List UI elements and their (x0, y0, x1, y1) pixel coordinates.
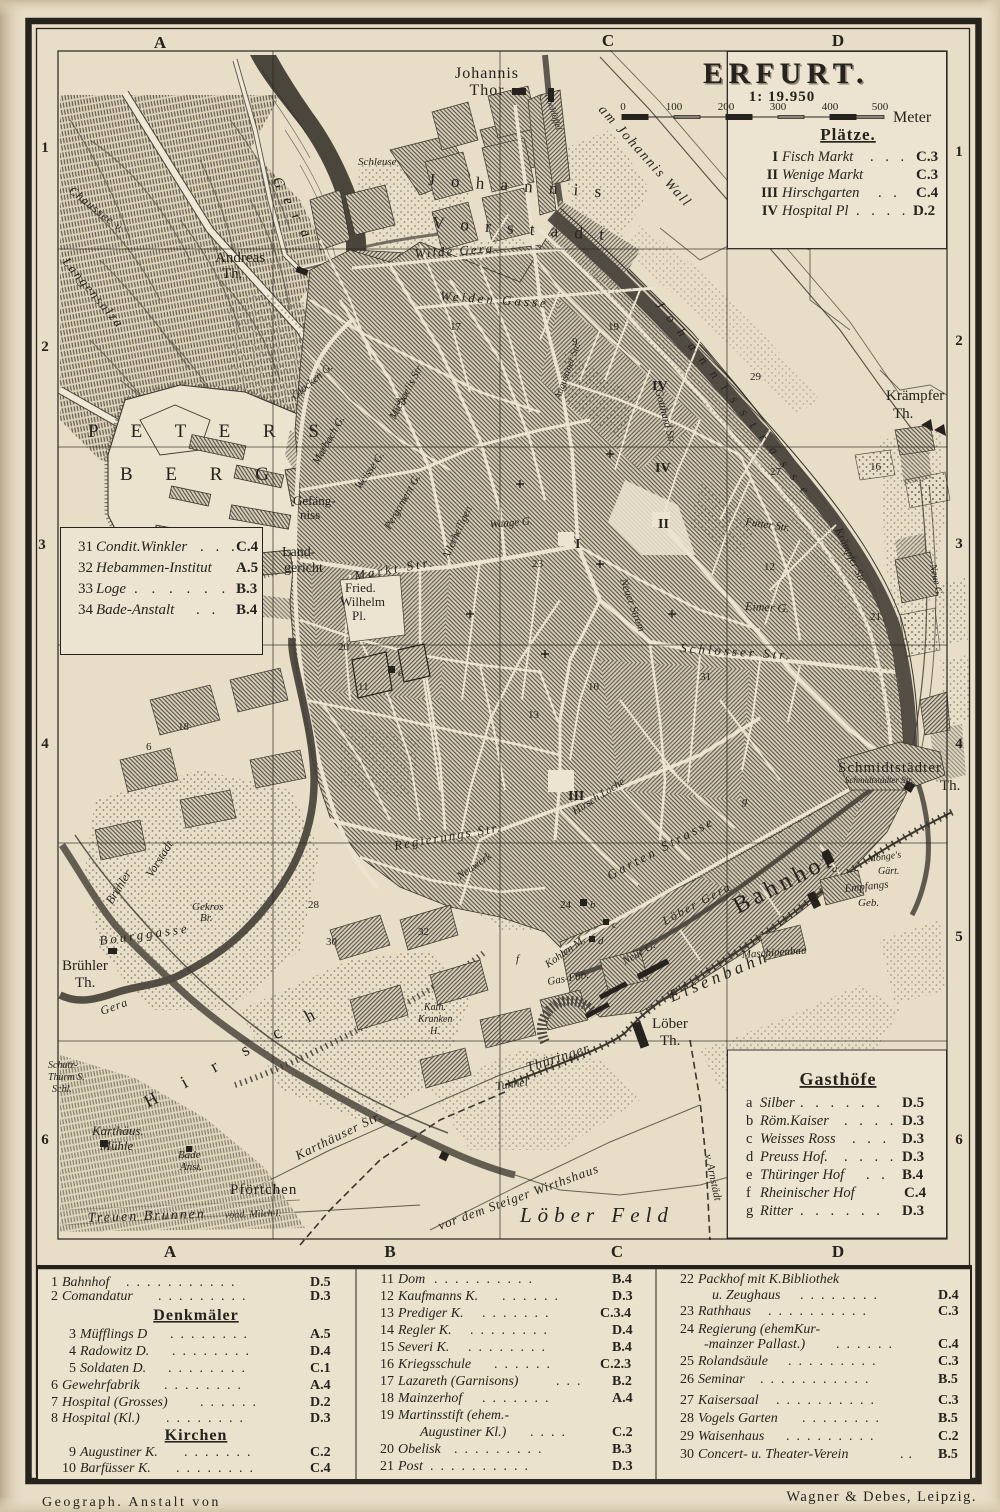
svg-text:Kirchen: Kirchen (165, 1427, 228, 1444)
svg-text:Andreas: Andreas (215, 250, 265, 266)
svg-text:33: 33 (395, 396, 407, 408)
svg-text:I: I (575, 537, 580, 552)
svg-text:D.3: D.3 (612, 1459, 633, 1474)
svg-text:Schmidtstädter Str.: Schmidtstädter Str. (845, 775, 913, 785)
svg-text:Hospital (Kl.): Hospital (Kl.) (61, 1411, 140, 1426)
svg-text:Thüringer Hof: Thüringer Hof (760, 1167, 846, 1183)
svg-text:29: 29 (680, 1429, 694, 1444)
svg-text:20: 20 (380, 1442, 394, 1457)
svg-text:Fried.: Fried. (345, 580, 376, 595)
svg-text:23: 23 (680, 1304, 694, 1319)
svg-text:5: 5 (69, 1361, 76, 1376)
svg-text:-mainzer Pallast.): -mainzer Pallast.) (704, 1337, 805, 1352)
svg-text:Brühler: Brühler (62, 958, 108, 974)
svg-text:Weisses Ross: Weisses Ross (760, 1131, 836, 1147)
svg-text:C.3.4: C.3.4 (600, 1306, 631, 1321)
svg-text:Rolandsäule: Rolandsäule (697, 1354, 768, 1369)
svg-text:Löber: Löber (652, 1016, 688, 1032)
svg-text:8: 8 (51, 1411, 58, 1426)
svg-text:Land-: Land- (282, 545, 316, 560)
svg-text:Mainzerhof: Mainzerhof (397, 1391, 464, 1406)
svg-text:H.: H. (429, 1026, 440, 1037)
svg-text:f: f (746, 1185, 751, 1201)
svg-text:16: 16 (870, 461, 882, 473)
svg-text:Th.: Th. (893, 406, 913, 422)
svg-text:......: ...... (494, 1357, 557, 1372)
svg-text:IV: IV (652, 379, 668, 394)
svg-text:B.3: B.3 (236, 581, 257, 597)
svg-text:....: .... (530, 1425, 572, 1440)
svg-text:Geograph. Anstalt von: Geograph. Anstalt von (42, 1495, 221, 1510)
svg-text:Gärt.: Gärt. (878, 866, 899, 877)
svg-text:.......: ....... (482, 1306, 556, 1321)
svg-text:16: 16 (380, 1357, 394, 1372)
svg-text:5: 5 (955, 929, 963, 945)
svg-text:Augustiner K.: Augustiner K. (79, 1445, 158, 1460)
svg-text:22: 22 (680, 1272, 694, 1287)
svg-text:........: ........ (176, 1461, 260, 1476)
svg-text:...........: ........... (760, 1372, 876, 1387)
svg-text:Schl.: Schl. (52, 1084, 72, 1095)
svg-text:Schutz-: Schutz- (48, 1060, 77, 1071)
svg-text:2: 2 (41, 339, 49, 355)
svg-text:D.3: D.3 (902, 1203, 924, 1219)
svg-text:32: 32 (78, 560, 93, 576)
svg-text:Bade: Bade (178, 1149, 201, 1161)
svg-text:Regierung (ehemKur-: Regierung (ehemKur- (697, 1322, 821, 1337)
svg-text:9: 9 (572, 336, 578, 348)
svg-text:Waisenhaus: Waisenhaus (698, 1429, 765, 1444)
svg-text:0: 0 (620, 101, 626, 113)
svg-text:14: 14 (380, 1323, 394, 1338)
svg-text:Meter: Meter (893, 109, 932, 126)
svg-text:34: 34 (78, 602, 94, 618)
svg-text:18: 18 (178, 721, 190, 733)
svg-text:Hospital Pl: Hospital Pl (781, 203, 848, 219)
svg-text:......: ...... (200, 1395, 263, 1410)
svg-text:Th.: Th. (75, 975, 95, 991)
svg-text:Obelisk: Obelisk (398, 1442, 442, 1457)
svg-text:27: 27 (770, 466, 782, 478)
svg-text:10: 10 (62, 1461, 76, 1476)
svg-text:C.4: C.4 (904, 1185, 927, 1201)
svg-text:100: 100 (666, 101, 683, 113)
svg-text:9: 9 (69, 1445, 76, 1460)
svg-text:6: 6 (51, 1378, 58, 1393)
svg-text:6: 6 (41, 1132, 49, 1148)
svg-text:b: b (746, 1113, 753, 1129)
svg-text:C.2: C.2 (612, 1425, 633, 1440)
svg-text:500: 500 (872, 101, 889, 113)
svg-text:C: C (611, 1242, 623, 1261)
svg-text:C.3: C.3 (938, 1354, 959, 1369)
svg-text:........: ........ (170, 1327, 254, 1342)
svg-text:A: A (154, 33, 167, 52)
svg-text:........: ........ (164, 1378, 248, 1393)
svg-text:e: e (398, 667, 403, 679)
svg-text:B.2: B.2 (612, 1374, 632, 1389)
svg-text:. . . .: . . . . (844, 1149, 897, 1165)
svg-text:.......: ....... (482, 1391, 556, 1406)
svg-text:........: ........ (468, 1340, 552, 1355)
svg-text:C.3: C.3 (938, 1393, 959, 1408)
svg-text:. . . .: . . . . (856, 203, 909, 219)
svg-text:c: c (746, 1131, 752, 1147)
svg-text:...........: ........... (126, 1275, 242, 1290)
svg-text:..........: .......... (768, 1304, 873, 1319)
svg-text:19: 19 (608, 321, 620, 333)
svg-text:D.3: D.3 (310, 1289, 331, 1304)
svg-text:Schleuse: Schleuse (358, 156, 397, 168)
svg-text:P E T E R S: P E T E R S (88, 421, 333, 442)
svg-text:Condit.Winkler: Condit.Winkler (96, 539, 187, 555)
svg-text:Ritter: Ritter (759, 1203, 793, 1219)
svg-text:28: 28 (308, 899, 320, 911)
svg-text:4: 4 (955, 736, 963, 752)
svg-text:B.3: B.3 (612, 1442, 632, 1457)
svg-text:voad. Milch I.: voad. Milch I. (225, 1208, 281, 1221)
svg-text:. . . . . .: . . . . . . (800, 1203, 884, 1219)
svg-text:A.5: A.5 (236, 560, 258, 576)
svg-text:III: III (568, 789, 584, 804)
svg-text:4: 4 (69, 1344, 76, 1359)
svg-text:. . . . . .: . . . . . . (800, 1095, 884, 1111)
svg-text:. . . .: . . . . (844, 1113, 897, 1129)
svg-text:Post: Post (397, 1459, 424, 1474)
svg-text:Barfüsser K.: Barfüsser K. (80, 1461, 151, 1476)
svg-text:21: 21 (380, 1459, 394, 1474)
svg-text:B.4: B.4 (236, 602, 258, 618)
svg-text:D.4: D.4 (938, 1288, 959, 1303)
svg-text:Preuss Hof.: Preuss Hof. (759, 1149, 828, 1165)
svg-text:Augustiner Kl.): Augustiner Kl.) (419, 1425, 507, 1440)
svg-text:D.3: D.3 (902, 1131, 924, 1147)
svg-text:Radowitz D.: Radowitz D. (79, 1344, 149, 1359)
svg-text:D.5: D.5 (310, 1275, 331, 1290)
svg-text:C.2.3: C.2.3 (600, 1357, 631, 1372)
svg-text:B.5: B.5 (938, 1447, 958, 1462)
svg-text:D.2: D.2 (913, 203, 935, 219)
svg-text:........: ........ (802, 1411, 886, 1426)
svg-text:...: ... (556, 1374, 588, 1389)
svg-text:III: III (761, 185, 778, 201)
svg-text:Regler K.: Regler K. (397, 1323, 452, 1338)
svg-text:........: ........ (168, 1361, 252, 1376)
svg-text:B.5: B.5 (938, 1411, 958, 1426)
svg-text:Dom: Dom (397, 1272, 425, 1287)
svg-text:C.4: C.4 (916, 185, 939, 201)
svg-text:C.1: C.1 (310, 1361, 331, 1376)
svg-text:Wilhelm: Wilhelm (340, 594, 385, 609)
svg-text:..........: .......... (430, 1459, 535, 1474)
svg-text:..: .. (900, 1447, 917, 1462)
svg-text:g: g (746, 1203, 753, 1219)
svg-text:Röm.Kaiser: Röm.Kaiser (759, 1113, 829, 1129)
svg-text:B.5: B.5 (938, 1372, 958, 1387)
svg-text:6: 6 (146, 741, 152, 753)
svg-text:A.4: A.4 (612, 1391, 633, 1406)
svg-text:Kaufmanns K.: Kaufmanns K. (397, 1289, 478, 1304)
svg-text:B.4: B.4 (612, 1340, 632, 1355)
svg-text:.........: ......... (158, 1289, 253, 1304)
svg-text:Prediger K.: Prediger K. (397, 1306, 464, 1321)
svg-text:C.3: C.3 (916, 167, 938, 183)
svg-text:D.5: D.5 (902, 1095, 924, 1111)
svg-text:II: II (767, 167, 779, 183)
svg-text:Silber: Silber (760, 1095, 795, 1111)
svg-text:........: ........ (166, 1411, 250, 1426)
svg-text:D.4: D.4 (310, 1344, 331, 1359)
svg-text:B.4: B.4 (612, 1272, 632, 1287)
svg-text:d: d (746, 1149, 754, 1165)
svg-text:D: D (832, 31, 844, 50)
svg-text:d: d (598, 935, 604, 947)
svg-text:D.2: D.2 (310, 1395, 331, 1410)
svg-text:Kranken: Kranken (417, 1014, 452, 1025)
svg-text:25: 25 (680, 1354, 694, 1369)
svg-text:.........: ......... (454, 1442, 549, 1457)
svg-text:Kath.: Kath. (423, 1002, 446, 1013)
svg-text:Wagner & Debes, Leipzig.: Wagner & Debes, Leipzig. (786, 1489, 977, 1505)
svg-text:Pförtchen: Pförtchen (230, 1182, 297, 1198)
svg-text:31: 31 (700, 671, 711, 683)
svg-text:B.4: B.4 (902, 1167, 924, 1183)
svg-text:b: b (590, 899, 596, 911)
svg-text:Concert- u. Theater-Verein: Concert- u. Theater-Verein (698, 1447, 848, 1462)
svg-text:3: 3 (38, 537, 46, 553)
svg-text:I: I (772, 149, 778, 165)
svg-text:Johannis: Johannis (455, 65, 519, 82)
svg-text:D.3: D.3 (902, 1149, 924, 1165)
svg-text:Geb.: Geb. (858, 897, 879, 909)
svg-text:12: 12 (380, 1289, 394, 1304)
svg-text:17: 17 (450, 321, 462, 333)
svg-text:g: g (742, 795, 748, 807)
svg-text:.......: ....... (184, 1445, 258, 1460)
svg-text:. .: . . (196, 602, 219, 618)
svg-text:21: 21 (870, 611, 881, 623)
svg-text:Karthäus.: Karthäus. (91, 1123, 144, 1138)
svg-text:u. Zeughaus: u. Zeughaus (712, 1288, 781, 1303)
svg-text:niss: niss (300, 507, 320, 522)
svg-text:11: 11 (358, 681, 369, 693)
svg-text:Loge: Loge (95, 581, 126, 597)
svg-text:7: 7 (51, 1395, 58, 1410)
svg-text:27: 27 (680, 1393, 694, 1408)
svg-text:Th.: Th. (222, 266, 242, 282)
svg-text:10: 10 (588, 681, 600, 693)
svg-text:1: 1 (41, 140, 49, 156)
svg-text:e: e (746, 1167, 752, 1183)
svg-text:Wenige Markt: Wenige Markt (782, 167, 864, 183)
svg-text:Hospital (Grosses): Hospital (Grosses) (61, 1395, 168, 1410)
svg-text:Bade-Anstalt: Bade-Anstalt (96, 602, 175, 618)
svg-text:gericht: gericht (284, 561, 323, 576)
svg-text:Rheinischer Hof: Rheinischer Hof (759, 1185, 857, 1201)
svg-text:C.4: C.4 (236, 539, 259, 555)
svg-text:a: a (746, 1095, 753, 1111)
svg-text:2: 2 (955, 333, 963, 349)
svg-text:400: 400 (822, 101, 839, 113)
svg-text:Gefäng-: Gefäng- (293, 493, 336, 508)
svg-text:Seminar: Seminar (698, 1372, 745, 1387)
svg-text:.........: ......... (786, 1429, 881, 1444)
svg-text:Schmidtstädter: Schmidtstädter (838, 760, 942, 776)
svg-text:Kriegsschule: Kriegsschule (397, 1357, 471, 1372)
svg-text:........: ........ (470, 1323, 554, 1338)
svg-text:Th.: Th. (660, 1033, 680, 1049)
svg-text:Br.: Br. (200, 912, 213, 924)
svg-text:Soldaten D.: Soldaten D. (80, 1361, 146, 1376)
svg-text:Hebammen-Institut: Hebammen-Institut (95, 560, 213, 576)
svg-text:B E R G: B E R G (120, 464, 283, 485)
svg-text:A.5: A.5 (310, 1327, 331, 1342)
svg-text:Th.: Th. (940, 778, 960, 794)
svg-text:D.3: D.3 (612, 1289, 633, 1304)
svg-text:23: 23 (532, 558, 544, 570)
svg-text:C.2: C.2 (310, 1445, 331, 1460)
svg-text:Severi K.: Severi K. (398, 1340, 449, 1355)
svg-text:Gewehrfabrik: Gewehrfabrik (62, 1378, 141, 1393)
svg-text:A.4: A.4 (310, 1378, 331, 1393)
svg-text:6: 6 (955, 1132, 963, 1148)
svg-text:300: 300 (770, 101, 787, 113)
svg-text:15: 15 (380, 1340, 394, 1355)
svg-text:Mühle: Mühle (99, 1138, 133, 1153)
svg-text:........: ........ (172, 1344, 256, 1359)
svg-text:200: 200 (718, 101, 735, 113)
svg-text:C.4: C.4 (938, 1337, 959, 1352)
svg-text:30: 30 (326, 936, 338, 948)
svg-text:Müfflings D: Müfflings D (79, 1327, 147, 1342)
svg-text:29: 29 (750, 371, 762, 383)
svg-text:Plätze.: Plätze. (820, 125, 876, 144)
svg-text:13: 13 (380, 1306, 394, 1321)
svg-text:II: II (658, 517, 669, 532)
svg-text:..........: .......... (776, 1393, 881, 1408)
svg-text:IV: IV (762, 203, 779, 219)
svg-text:......: ...... (502, 1289, 565, 1304)
svg-text:..........: .......... (434, 1272, 539, 1287)
svg-text:Pl.: Pl. (352, 608, 366, 623)
svg-text:Anst.: Anst. (179, 1161, 202, 1173)
svg-text:.........: ......... (788, 1354, 883, 1369)
svg-text:IV: IV (655, 461, 671, 476)
svg-text:B: B (384, 1242, 395, 1261)
svg-text:13: 13 (528, 709, 540, 721)
svg-text:Packhof mit K.Bibliothek: Packhof mit K.Bibliothek (697, 1272, 840, 1287)
svg-text:3: 3 (955, 536, 963, 552)
svg-text:. . .: . . . (870, 149, 908, 165)
svg-text:D.4: D.4 (612, 1323, 633, 1338)
svg-text:Löber Feld: Löber Feld (519, 1203, 674, 1227)
svg-text:1: 1 (51, 1275, 58, 1290)
svg-text:Denkmäler: Denkmäler (153, 1307, 238, 1324)
svg-text:........: ........ (800, 1288, 884, 1303)
svg-text:. .: . . (878, 185, 901, 201)
svg-text:C: C (602, 31, 614, 50)
svg-text:C.4: C.4 (310, 1461, 331, 1476)
svg-text:Lazareth (Garnisons): Lazareth (Garnisons) (397, 1374, 519, 1389)
svg-text:A: A (164, 1242, 177, 1261)
svg-text:2: 2 (51, 1289, 58, 1304)
svg-text:. . .: . . . (852, 1131, 890, 1147)
svg-text:Gasthöfe: Gasthöfe (800, 1069, 877, 1089)
svg-text:33: 33 (78, 581, 93, 597)
svg-text:Comandatur: Comandatur (62, 1289, 133, 1304)
svg-text:28: 28 (680, 1411, 694, 1426)
svg-text:32: 32 (418, 926, 429, 938)
svg-text:. .: . . (866, 1167, 889, 1183)
svg-text:26: 26 (680, 1372, 694, 1387)
svg-text:17: 17 (380, 1374, 394, 1389)
svg-text:12: 12 (764, 561, 775, 573)
svg-text:C.3: C.3 (938, 1304, 959, 1319)
svg-text:Martinsstift (ehem.-: Martinsstift (ehem.- (397, 1408, 510, 1423)
svg-text:1: 1 (955, 144, 963, 160)
svg-text:24: 24 (680, 1322, 694, 1337)
svg-text:Vogels Garten: Vogels Garten (698, 1411, 778, 1426)
svg-text:Bahnhof: Bahnhof (62, 1275, 112, 1290)
svg-text:31: 31 (78, 539, 93, 555)
svg-text:4: 4 (41, 736, 49, 752)
svg-text:Thurm S.: Thurm S. (48, 1072, 85, 1083)
svg-text:11: 11 (381, 1272, 394, 1287)
svg-text:19: 19 (380, 1408, 394, 1423)
svg-text:......: ...... (836, 1337, 899, 1352)
svg-text:24: 24 (560, 899, 572, 911)
svg-text:20: 20 (338, 641, 350, 653)
svg-text:C.2: C.2 (938, 1429, 959, 1444)
svg-text:3: 3 (69, 1327, 76, 1342)
svg-text:Fisch Markt: Fisch Markt (781, 149, 854, 165)
svg-text:Eimer G.: Eimer G. (744, 599, 790, 615)
svg-text:Hirschgarten: Hirschgarten (781, 185, 859, 201)
svg-text:c: c (612, 919, 617, 931)
svg-text:18: 18 (380, 1391, 394, 1406)
svg-text:ERFURT.: ERFURT. (703, 57, 869, 90)
svg-text:. . . . . .: . . . . . . (134, 581, 230, 597)
svg-text:30: 30 (680, 1447, 694, 1462)
svg-text:Rathhaus: Rathhaus (697, 1304, 751, 1319)
svg-text:. . .: . . . (200, 539, 239, 555)
svg-text:D.3: D.3 (310, 1411, 331, 1426)
svg-text:Kaisersaal: Kaisersaal (697, 1393, 759, 1408)
svg-text:Thor: Thor (469, 82, 504, 99)
svg-text:Krämpfer: Krämpfer (886, 388, 944, 404)
svg-text:D: D (832, 1242, 844, 1261)
svg-text:C.3: C.3 (916, 149, 938, 165)
svg-text:D.3: D.3 (902, 1113, 924, 1129)
